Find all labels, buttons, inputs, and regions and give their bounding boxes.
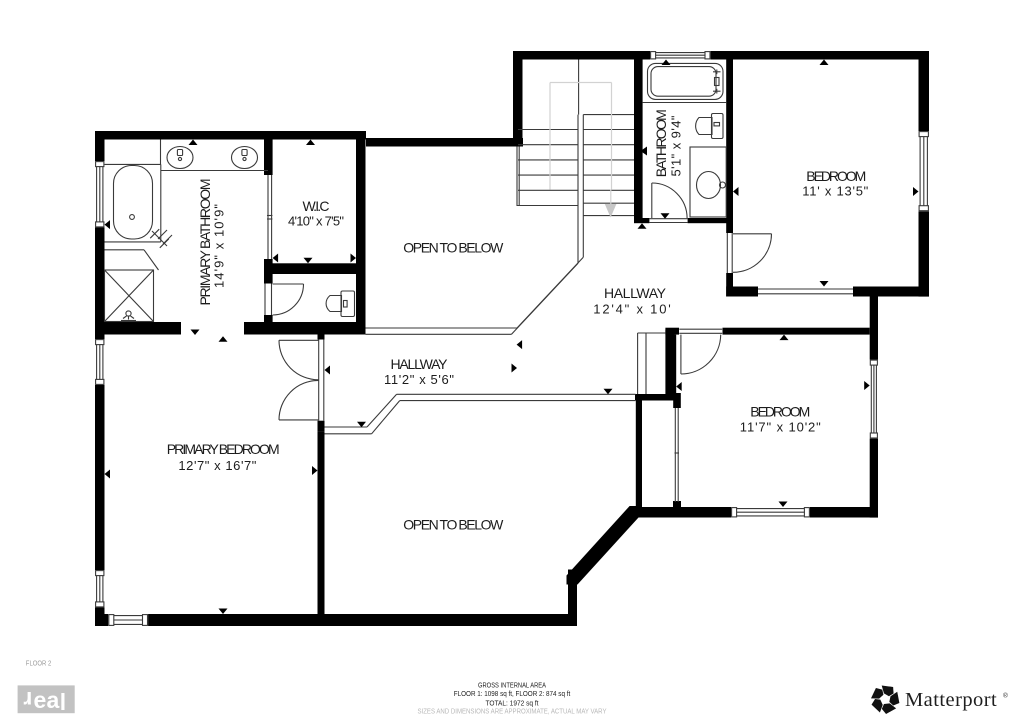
svg-text:12'4" x 10': 12'4" x 10' <box>593 302 670 317</box>
svg-text:4'10" x 7'5": 4'10" x 7'5" <box>288 213 344 228</box>
svg-text:14'9" x 10'9": 14'9" x 10'9" <box>212 204 227 288</box>
svg-text:11'7" x 10'2": 11'7" x 10'2" <box>740 419 821 434</box>
svg-text:FLOOR 2: FLOOR 2 <box>26 661 52 668</box>
svg-text:HALLWAY: HALLWAY <box>604 285 667 301</box>
svg-text:5'1" x 9'4": 5'1" x 9'4" <box>669 115 684 176</box>
svg-text:e: e <box>34 687 47 713</box>
svg-text:W.I.C: W.I.C <box>303 198 330 214</box>
svg-text:r: r <box>23 687 32 713</box>
svg-text:11'2" x 5'6": 11'2" x 5'6" <box>384 372 454 387</box>
svg-text:12'7" x 16'7": 12'7" x 16'7" <box>178 458 256 473</box>
svg-text:OPEN TO BELOW: OPEN TO BELOW <box>403 517 504 533</box>
svg-text:Matterport: Matterport <box>905 689 997 711</box>
svg-text:BEDROOM: BEDROOM <box>806 168 866 184</box>
svg-text:l: l <box>60 688 66 714</box>
svg-text:a: a <box>47 687 60 713</box>
svg-text:PRIMARY BEDROOM: PRIMARY BEDROOM <box>167 441 280 457</box>
svg-text:OPEN TO BELOW: OPEN TO BELOW <box>403 240 504 256</box>
svg-text:11' x 13'5": 11' x 13'5" <box>802 183 868 198</box>
svg-text:SIZES AND DIMENSIONS ARE APPRO: SIZES AND DIMENSIONS ARE APPROXIMATE, AC… <box>418 707 607 716</box>
svg-text:BATHROOM: BATHROOM <box>653 109 669 177</box>
svg-text:FLOOR 1: 1098 sq ft, FLOOR 2:: FLOOR 1: 1098 sq ft, FLOOR 2: 874 sq ft <box>454 689 571 698</box>
svg-text:HALLWAY: HALLWAY <box>391 356 449 372</box>
svg-text:®: ® <box>1003 692 1008 700</box>
svg-text:BEDROOM: BEDROOM <box>750 403 810 419</box>
